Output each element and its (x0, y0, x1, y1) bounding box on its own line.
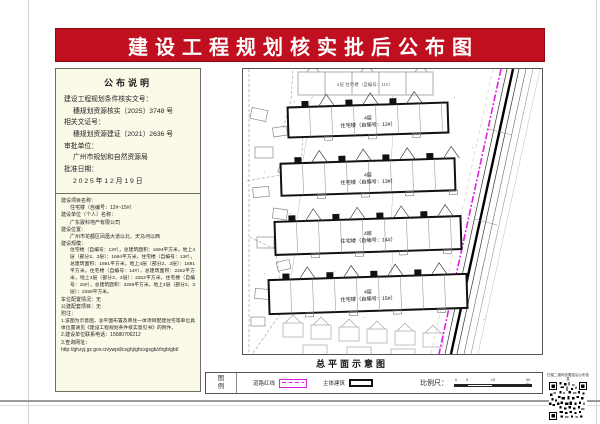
project-line: 建设位置： (61, 227, 195, 234)
sheet-bottom-rule-2 (0, 405, 600, 406)
building-floors-label: 4层 (364, 289, 372, 295)
notice-line: 广州市规划和自然资源局 (64, 152, 192, 164)
svg-text:+: + (363, 315, 366, 320)
building-floors-label: 4层 (364, 115, 372, 121)
notice-header: 公布说明 (64, 76, 192, 89)
announcement-sheet: 建设工程规划核实批后公布图 公布说明 建设工程规划条件核实文号： 穗规划资源核实… (0, 0, 600, 424)
notice-line: 穗规划资源建证〔2021〕2636 号 (64, 129, 192, 141)
road-centerline-bold (451, 69, 513, 354)
plan-caption: 总平面示意图 (252, 357, 452, 370)
scale-label: 比例尺： (420, 378, 448, 389)
svg-text:+: + (289, 211, 292, 216)
project-line: 附注： (61, 311, 195, 318)
project-line: 建设单位（个人）名称： (61, 212, 195, 219)
svg-text:+: + (263, 169, 266, 174)
notice-line: 审批单位： (64, 141, 192, 153)
legend-title: 图 例 (206, 373, 237, 393)
svg-text:+: + (293, 99, 296, 104)
svg-text:+: + (453, 95, 456, 100)
building-floors-label: 4层 (364, 172, 372, 178)
residential-row-building: 4层住宅楼（自编号：14#） (274, 204, 461, 259)
notice-line: 相关文证号： (64, 117, 192, 129)
building-floors-label: 4层 (364, 231, 372, 237)
legend-title-char: 图 (218, 375, 225, 383)
scale-tick: 15 (491, 377, 495, 382)
project-note-line: 1.该图为示意图，总平面布置及商住一体项目配建住宅等单位具体位置请见《建设工程规… (61, 319, 195, 333)
scale-tick: 5 (466, 377, 468, 382)
svg-text:+: + (263, 271, 266, 276)
legend-title-char: 例 (218, 383, 225, 391)
project-details-panel: 建设项目名称： 住宅楼（自编号：12#~15#） 建设单位（个人）名称： 广东骏… (55, 193, 201, 392)
legend-strip: 图 例 道路红线 主体建筑 比例尺： 0 5 15 30米 (205, 372, 543, 394)
residential-row-building: 4层住宅楼（自编号：12#） (287, 91, 448, 142)
project-line: 公建配套项目：无 (61, 304, 195, 311)
residential-row-building: 4层住宅楼（自编号：15#） (268, 262, 467, 318)
qr-code-block: 扫描二维码查看批后公布信息 (546, 373, 590, 424)
project-scale-paragraph: 住宅楼（自编号：12#），总建筑面积：1694平方米，地上4层（部分2、3层）：… (61, 248, 195, 297)
notice-line: 批准日期： (64, 164, 192, 176)
site-plan-drawing: 4层 住宅楼（自编号：11#） +++ +++ +++ +++ +++ (242, 68, 543, 355)
notice-panel: 公布说明 建设工程规划条件核实文号： 穗规划资源核实〔2025〕3748 号 相… (55, 68, 201, 194)
project-note-line: 3.查询网址： (61, 340, 195, 347)
page-title: 建设工程规划核实批后公布图 (128, 31, 479, 60)
project-url: http://ghzyj.gz.gov.cn/ywpd/csghj/ghcsgs… (61, 347, 195, 354)
notice-line: 建设工程规划条件核实文号： (64, 94, 192, 106)
svg-text:+: + (339, 211, 342, 216)
scale-bar: 0 5 15 30米 (454, 377, 532, 389)
residential-row-building: 4层住宅楼（自编号：13#） (280, 146, 460, 200)
notice-line: 2 0 2 5 年 1 2 月 1 9 日 (64, 176, 192, 188)
notice-line: 穗规划资源核实〔2025〕3748 号 (64, 106, 192, 118)
title-banner: 建设工程规划核实批后公布图 (55, 28, 545, 62)
legend-item-road-redline: 道路红线 (253, 379, 307, 388)
scale-bar-group: 比例尺： 0 5 15 30米 (420, 377, 532, 389)
existing-south-houses (283, 315, 443, 354)
svg-text:+: + (471, 145, 474, 150)
main-building-symbol (349, 379, 373, 387)
project-line: 广东骏科地产有限公司 (61, 220, 195, 227)
road-redline-symbol (279, 379, 307, 388)
legend-item-main-building: 主体建筑 (323, 379, 373, 387)
sheet-left-edge (28, 0, 29, 424)
sheet-bottom-rule (0, 400, 600, 402)
svg-text:+: + (473, 205, 476, 210)
sheet-right-edge (596, 0, 597, 424)
qr-code-icon (549, 382, 587, 420)
svg-text:+: + (333, 269, 336, 274)
context-building-label: 4层 住宅楼（自编号：11#） (337, 81, 393, 88)
scale-tick: 0 (455, 377, 457, 382)
legend-road-label: 道路红线 (253, 379, 275, 387)
qr-caption: 扫描二维码查看批后公布信息 (546, 373, 590, 381)
project-note-line: 2.建设单位联系电话：15680706212 (61, 332, 195, 339)
legend-building-label: 主体建筑 (323, 379, 345, 387)
site-plan-svg: 4层 住宅楼（自编号：11#） +++ +++ +++ +++ +++ (243, 69, 542, 354)
